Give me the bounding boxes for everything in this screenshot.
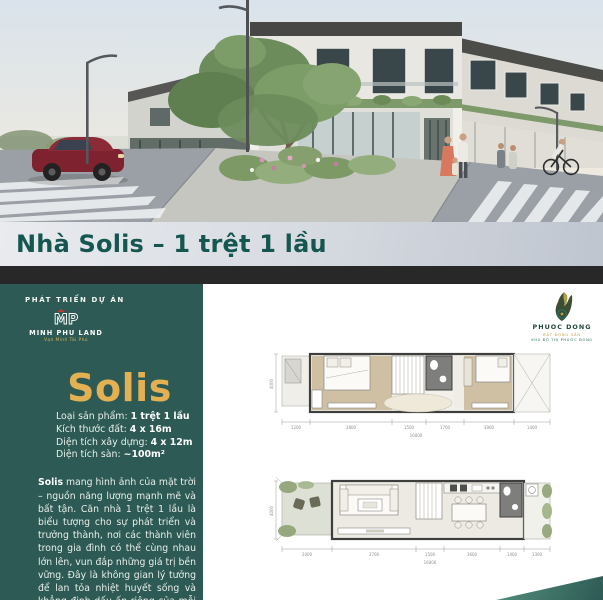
developer-logo: MP MINH PHU LAND Vạn Minh Tài Phú [18, 308, 114, 343]
divider-strip [0, 266, 603, 284]
spec-value: 4 x 16m [130, 424, 172, 435]
dim-label: 1400 [507, 552, 518, 557]
developer-name: MINH PHU LAND [18, 329, 114, 337]
spec-row-type: Loại sản phẩm: 1 trệt 1 lầu [56, 411, 193, 424]
description-body: mang hình ảnh của mặt trời – nguồn năng … [38, 477, 196, 600]
dim-label: 3900 [484, 425, 495, 430]
spec-list: Loại sản phẩm: 1 trệt 1 lầu Kích thước đ… [56, 411, 193, 462]
dim-total: 16000 [424, 560, 437, 565]
partner-tagline-teal: KHU ĐÔ THỊ PHƯỚC ĐÔNG [527, 338, 597, 342]
dim-label: 1200 [291, 425, 302, 430]
spec-label: Kích thước đất: [56, 424, 130, 435]
product-name: Solis [0, 366, 203, 410]
spec-label: Diện tích xây dựng: [56, 437, 151, 448]
dim-label: 3600 [467, 552, 478, 557]
minh-phu-land-logo-icon: MP [47, 308, 85, 328]
spec-value: 4 x 12m [151, 437, 193, 448]
plan-upper-dimensions: 1200 3800 1500 1700 3900 1400 16000 [282, 419, 550, 438]
plan-ground-porch [276, 477, 332, 541]
developer-monogram: MP [54, 312, 78, 328]
dim-label: 2000 [302, 552, 313, 557]
dim-label: 1400 [527, 425, 538, 430]
plan-ground-body [332, 481, 524, 539]
dim-label: 3700 [369, 552, 380, 557]
spec-row-land: Kích thước đất: 4 x 16m [56, 424, 193, 437]
dim-side: 4000 [269, 378, 274, 389]
title-band: Nhà Solis – 1 trệt 1 lầu [0, 222, 603, 266]
plan-ground-patio [524, 483, 552, 539]
dim-side: 4000 [269, 505, 274, 516]
spec-value: ~100m² [124, 449, 165, 460]
dim-label: 3800 [346, 425, 357, 430]
dim-label: 1500 [404, 425, 415, 430]
spec-value: 1 trệt 1 lầu [131, 411, 190, 422]
partner-logo: PHUOC DONG BẤT ĐỘNG SẢN KHU ĐÔ THỊ PHƯỚC… [527, 292, 597, 342]
product-description: Solis mang hình ảnh của mặt trời – nguồn… [38, 476, 196, 600]
plan-upper-balcony [282, 356, 310, 406]
corner-accent [496, 576, 603, 600]
hero-photo [0, 0, 603, 222]
dim-total: 16000 [410, 433, 423, 438]
description-lead: Solis [38, 477, 63, 488]
plan-ground-dimensions: 2000 3700 1500 3600 1400 1300 16000 [282, 546, 550, 565]
dim-label: 1700 [440, 425, 451, 430]
plan-upper-void [514, 354, 550, 412]
floor-plan-ground: 4000 [274, 477, 566, 573]
developer-label: PHÁT TRIỂN DỰ ÁN [25, 296, 125, 304]
spec-label: Diện tích sàn: [56, 449, 124, 460]
developer-tagline: Vạn Minh Tài Phú [18, 338, 114, 343]
dim-label: 1500 [425, 552, 436, 557]
dim-label: 1300 [532, 552, 543, 557]
plan-upper-body [310, 354, 514, 412]
phuoc-dong-flame-icon [549, 292, 575, 322]
spec-row-floor: Diện tích sàn: ~100m² [56, 449, 193, 462]
spec-label: Loại sản phẩm: [56, 411, 131, 422]
brochure-page: Nhà Solis – 1 trệt 1 lầu PHÁT TRIỂN DỰ Á… [0, 0, 603, 600]
page-title: Nhà Solis – 1 trệt 1 lầu [16, 230, 327, 258]
spec-row-build: Diện tích xây dựng: 4 x 12m [56, 437, 193, 450]
partner-name: PHUOC DONG [527, 323, 597, 331]
partner-tagline-gold: BẤT ĐỘNG SẢN [527, 333, 597, 337]
floor-plan-upper: 4000 [274, 350, 566, 446]
sidebar: PHÁT TRIỂN DỰ ÁN MP MINH PHU LAND Vạn Mi… [0, 284, 203, 600]
